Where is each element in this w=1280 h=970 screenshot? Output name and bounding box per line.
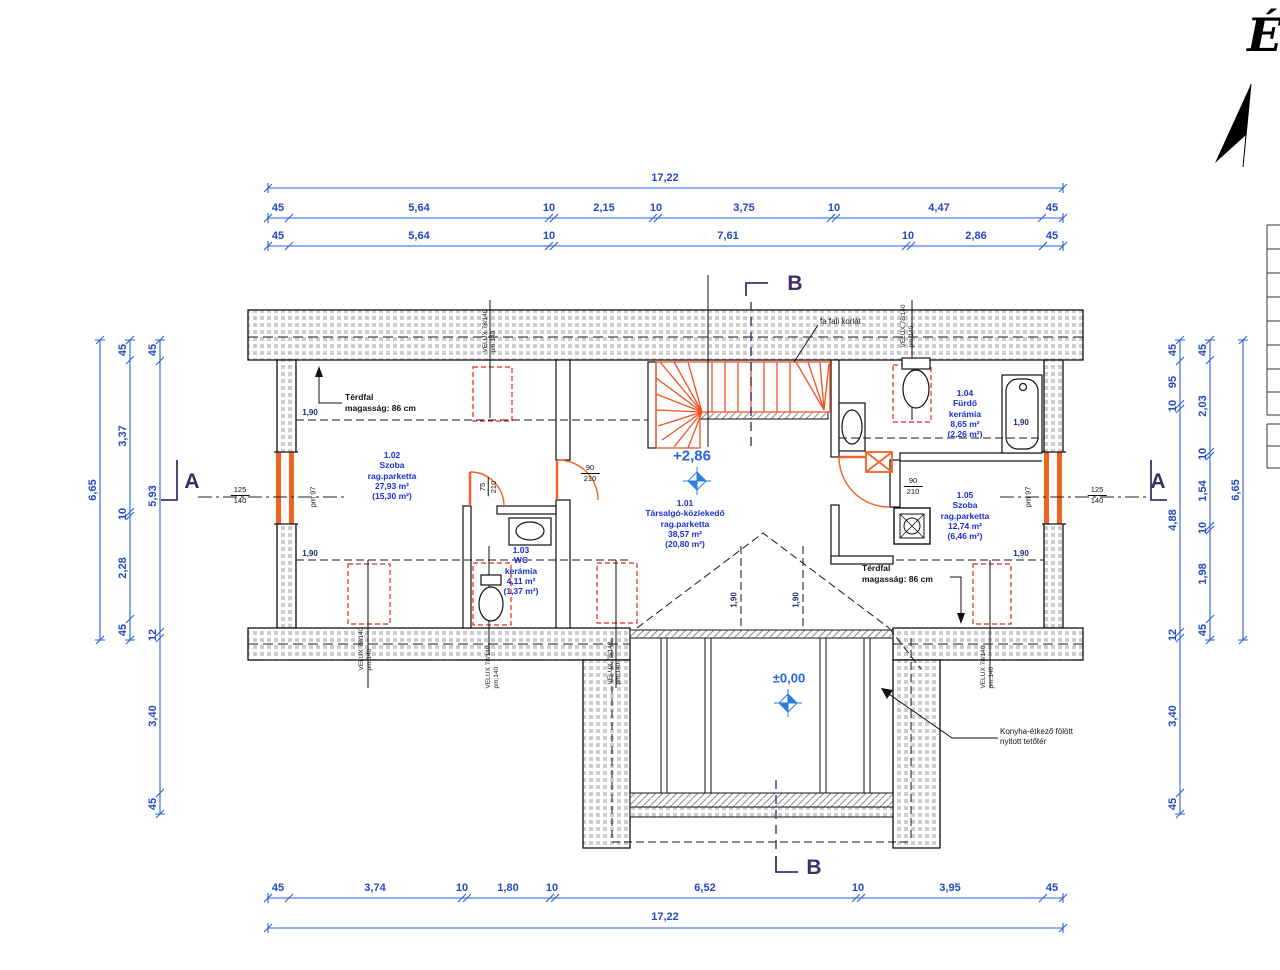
section-marker-b-bottom: B xyxy=(806,856,821,880)
section-marker-b-top: B xyxy=(787,272,802,296)
room-label-1-02: 1.02 Szoba rag.parketta 27,93 m² (15,30 … xyxy=(368,450,417,502)
void-beams xyxy=(661,638,870,793)
dim-right2: 45 xyxy=(1197,624,1209,636)
void-line2: nyitott tetőtér xyxy=(1000,737,1073,747)
dim-right: 10 xyxy=(1167,400,1179,412)
dim-right2: 45 xyxy=(1197,344,1209,356)
dim-left: 45 xyxy=(117,624,129,636)
velux-parapet: pm:140 xyxy=(908,304,916,347)
window-height: 140 xyxy=(231,495,250,506)
door-width: 90 xyxy=(581,463,600,473)
kneewall-line1: Térdfal xyxy=(862,563,933,574)
window-right xyxy=(1042,452,1066,524)
velux-size: VELUX 78/140 xyxy=(900,304,908,347)
window-parapet-left: pm 97 xyxy=(309,487,318,508)
door-size-label: 90 210 xyxy=(581,463,600,484)
dim-bottom: 6,52 xyxy=(694,882,715,894)
dim-bottom: 1,80 xyxy=(497,882,518,894)
window-left xyxy=(274,452,298,524)
dim-right: 4,88 xyxy=(1167,509,1179,530)
dim-left2: 3,40 xyxy=(147,705,159,726)
velux-parapet: pm:140 xyxy=(615,641,623,684)
door-width: 75 xyxy=(478,478,488,497)
dim-right: 45 xyxy=(1167,798,1179,810)
room-label-1-05: 1.05 Szoba rag.parketta 12,74 m² (6,46 m… xyxy=(941,490,990,542)
dim-top: 45 xyxy=(272,202,284,214)
dim-top-total: 17,22 xyxy=(651,172,679,184)
door-width: 90 xyxy=(904,476,923,486)
dim-right: 95 xyxy=(1167,376,1179,388)
dim-left: 2,28 xyxy=(117,557,129,578)
legend-table-edge xyxy=(1267,225,1280,468)
dim-right-total: 6,65 xyxy=(1230,479,1242,500)
dim-bottom: 45 xyxy=(1046,882,1058,894)
section-marker-a-left: A xyxy=(184,470,199,494)
room-finish: rag.parketta xyxy=(941,511,990,521)
kneewall-line1: Térdfal xyxy=(345,392,416,403)
velux-label: VELUX 78/140 pm:140 xyxy=(482,309,498,352)
room-reduced-area: (6,46 m²) xyxy=(941,531,990,541)
dim-top: 45 xyxy=(1046,202,1058,214)
dim-top2: 2,86 xyxy=(965,230,986,242)
dim-right2: 10 xyxy=(1197,448,1209,460)
dim-right2: 1,54 xyxy=(1197,480,1209,501)
room-reduced-area: (2,26 m²) xyxy=(948,429,983,439)
dim-left-total: 6,65 xyxy=(87,479,99,500)
room-id: 1.01 xyxy=(645,498,724,508)
level-upper-label: +2,86 xyxy=(673,448,711,465)
dim-top2: 45 xyxy=(272,230,284,242)
dim-right2: 1,98 xyxy=(1197,563,1209,584)
void-sill xyxy=(630,630,893,638)
headroom-label: 1,90 xyxy=(302,408,318,417)
dim-top: 10 xyxy=(650,202,662,214)
headroom-label: 1,90 xyxy=(302,549,318,558)
void-bottom-beam xyxy=(630,793,893,807)
dim-bottom: 3,74 xyxy=(364,882,385,894)
door-height: 210 xyxy=(488,478,499,497)
velux-size: VELUX 78/140 xyxy=(482,309,490,352)
room-reduced-area: (15,30 m²) xyxy=(368,491,417,501)
velux-size: VELUX 78/140 xyxy=(358,627,366,670)
wc-door-size-label: 75 210 xyxy=(478,478,499,497)
dim-top: 10 xyxy=(828,202,840,214)
dim-right2: 2,03 xyxy=(1197,395,1209,416)
velux-size: VELUX 78/140 xyxy=(607,641,615,684)
room-finish: rag.parketta xyxy=(368,471,417,481)
section-marks xyxy=(161,283,1167,872)
dim-left2: 12 xyxy=(147,629,159,641)
velux-parapet: pm:140 xyxy=(493,645,501,688)
window-size-left: 125 140 xyxy=(231,485,250,506)
level-marker-upper xyxy=(683,467,711,495)
room-area: 27,93 m² xyxy=(368,481,417,491)
stair-landing-wall xyxy=(700,412,828,419)
window-width: 125 xyxy=(1088,485,1107,495)
floor-plan-sheet: É 17,22 45 5,64 10 2,15 10 3,75 10 4,47 … xyxy=(0,0,1280,970)
void-line1: Konyha-étkező fölött xyxy=(1000,727,1073,737)
kneewall-note-left: Térdfal magasság: 86 cm xyxy=(345,392,416,414)
velux-label: VELUX 78/140 pm:140 xyxy=(607,641,623,684)
room-area: 8,65 m² xyxy=(948,419,983,429)
window-height: 140 xyxy=(1088,495,1107,506)
velux-parapet: pm:140 xyxy=(366,627,374,670)
north-arrow-icon xyxy=(1215,84,1251,167)
dim-top: 3,75 xyxy=(733,202,754,214)
room-id: 1.03 xyxy=(504,545,539,555)
dim-top2: 10 xyxy=(543,230,555,242)
headroom-label: 1,90 xyxy=(730,592,739,608)
level-marker-ground xyxy=(774,689,802,717)
room-name: Fürdő xyxy=(948,398,983,408)
stair xyxy=(656,362,830,448)
velux-label: VELUX 78/140 pm:140 xyxy=(358,627,374,670)
window-size-right: 125 140 xyxy=(1088,485,1107,506)
dim-left2: 5,93 xyxy=(147,485,159,506)
dim-left: 3,37 xyxy=(117,425,129,446)
room-label-1-01: 1.01 Társalgó-közlekedő rag.parketta 38,… xyxy=(645,498,724,550)
dim-top: 10 xyxy=(543,202,555,214)
room-finish: kerámia xyxy=(948,409,983,419)
room-label-1-03: 1.03 WC kerámia 4,11 m² (1,37 m²) xyxy=(504,545,539,597)
dim-top: 2,15 xyxy=(593,202,614,214)
dim-left2: 45 xyxy=(147,798,159,810)
dim-top: 5,64 xyxy=(408,202,429,214)
dim-top2: 5,64 xyxy=(408,230,429,242)
section-marker-a-right: A xyxy=(1150,470,1165,494)
door-height: 210 xyxy=(581,473,600,484)
void-bottom-band xyxy=(630,807,893,817)
dim-left2: 45 xyxy=(147,344,159,356)
velux-label: VELUX 78/140 pm:140 xyxy=(485,645,501,688)
room-label-1-04: 1.04 Fürdő kerámia 8,65 m² (2,26 m²) xyxy=(948,388,983,440)
dim-bottom: 3,95 xyxy=(939,882,960,894)
dim-left: 45 xyxy=(117,344,129,356)
dim-bottom: 10 xyxy=(852,882,864,894)
dim-right: 12 xyxy=(1167,629,1179,641)
railing-label: fa fali korlát xyxy=(820,317,861,327)
velux-size: VELUX 78/140 xyxy=(485,645,493,688)
door-size-label: 90 210 xyxy=(904,476,923,497)
window-parapet-right: pm 97 xyxy=(1024,487,1033,508)
level-ground-label: ±0,00 xyxy=(773,671,805,686)
dim-right: 45 xyxy=(1167,344,1179,356)
dim-bottom-total: 17,22 xyxy=(651,911,679,923)
kneewall-line2: magasság: 86 cm xyxy=(862,574,933,585)
dim-right2: 10 xyxy=(1197,522,1209,534)
dim-right: 3,40 xyxy=(1167,705,1179,726)
bathtub-length-label: 1,90 xyxy=(1013,418,1029,427)
dim-top2: 7,61 xyxy=(717,230,738,242)
velux-parapet: pm:140 xyxy=(988,645,996,688)
room-name: WC xyxy=(504,555,539,565)
room-name: Társalgó-közlekedő xyxy=(645,508,724,518)
dim-bottom: 45 xyxy=(272,882,284,894)
room-area: 4,11 m² xyxy=(504,576,539,586)
kneewall-note-right: Térdfal magasság: 86 cm xyxy=(862,563,933,585)
room-area: 38,57 m² xyxy=(645,529,724,539)
kneewall-line2: magasság: 86 cm xyxy=(345,403,416,414)
room-id: 1.02 xyxy=(368,450,417,460)
dim-top2: 45 xyxy=(1046,230,1058,242)
velux-parapet: pm:140 xyxy=(490,309,498,352)
window-width: 125 xyxy=(231,485,250,495)
room-id: 1.05 xyxy=(941,490,990,500)
chimney-shaft xyxy=(894,508,930,544)
void-note: Konyha-étkező fölött nyitott tetőtér xyxy=(1000,727,1073,748)
dim-bottom: 10 xyxy=(456,882,468,894)
north-label: É xyxy=(1247,8,1280,62)
room-finish: kerámia xyxy=(504,566,539,576)
dimension-lines xyxy=(95,183,1248,933)
room-finish: rag.parketta xyxy=(645,519,724,529)
headroom-label: 1,90 xyxy=(792,592,801,608)
dim-top2: 10 xyxy=(902,230,914,242)
railing-note: fa fali korlát xyxy=(820,317,861,327)
room-id: 1.04 xyxy=(948,388,983,398)
room-name: Szoba xyxy=(941,500,990,510)
dim-bottom: 10 xyxy=(546,882,558,894)
room-area: 12,74 m² xyxy=(941,521,990,531)
dim-left: 10 xyxy=(117,508,129,520)
room-name: Szoba xyxy=(368,460,417,470)
room-reduced-area: (20,80 m²) xyxy=(645,539,724,549)
velux-size: VELUX 78/140 xyxy=(980,645,988,688)
dim-top: 4,47 xyxy=(928,202,949,214)
door-height: 210 xyxy=(904,486,923,497)
headroom-label: 1,90 xyxy=(1013,549,1029,558)
velux-label: VELUX 78/140 pm:140 xyxy=(900,304,916,347)
room-reduced-area: (1,37 m²) xyxy=(504,586,539,596)
velux-label: VELUX 78/140 pm:140 xyxy=(980,645,996,688)
